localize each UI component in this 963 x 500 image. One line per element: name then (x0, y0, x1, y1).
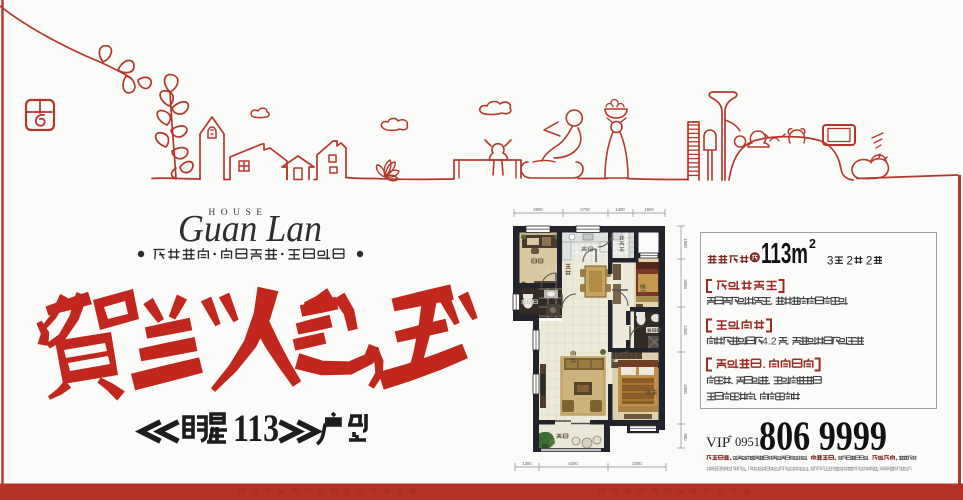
svg-text:2: 2 (866, 256, 872, 268)
svg-text:+: + (728, 432, 733, 442)
svg-text:900: 900 (683, 433, 688, 441)
svg-text:4200: 4200 (568, 461, 578, 466)
svg-text:3000: 3000 (683, 279, 688, 289)
svg-text:806 9999: 806 9999 (759, 413, 887, 459)
svg-text:1800: 1800 (683, 238, 688, 248)
svg-text:4800: 4800 (683, 384, 688, 394)
svg-text:3: 3 (827, 256, 833, 268)
svg-text:2: 2 (847, 256, 853, 268)
svg-text:113: 113 (233, 407, 279, 450)
svg-text:2300: 2300 (632, 461, 642, 466)
svg-text:1380: 1380 (522, 461, 532, 466)
svg-text:2: 2 (809, 237, 816, 251)
svg-text:2700: 2700 (580, 207, 590, 212)
svg-text:4.2: 4.2 (762, 336, 777, 348)
svg-text:0951: 0951 (735, 435, 760, 449)
svg-text:2800: 2800 (533, 207, 543, 212)
svg-text:1900: 1900 (644, 207, 654, 212)
svg-text:2300: 2300 (683, 325, 688, 335)
svg-text:Guan Lan: Guan Lan (178, 208, 322, 250)
svg-text:1400: 1400 (615, 207, 625, 212)
svg-text:113m: 113m (761, 238, 808, 270)
